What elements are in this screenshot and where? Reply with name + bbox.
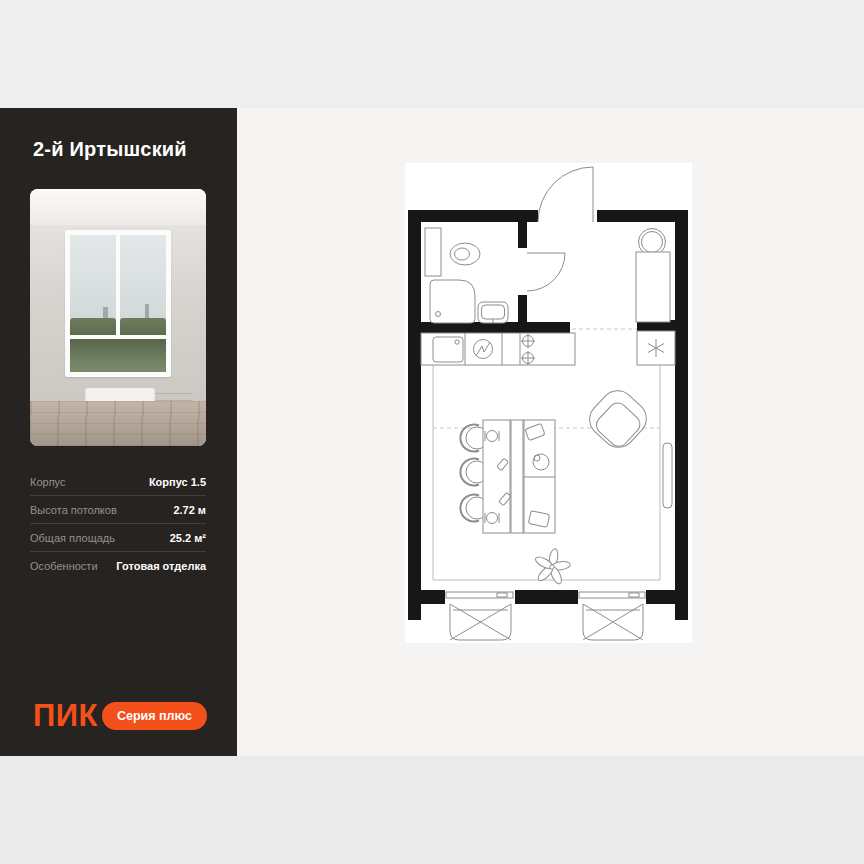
photo-window-lower-pane	[70, 339, 166, 372]
toilet-icon	[450, 243, 480, 265]
spec-label: Высота потолков	[30, 504, 117, 516]
entrance-door-icon	[538, 167, 593, 222]
floorplan-svg	[405, 163, 692, 643]
spec-label: Общая площадь	[30, 532, 115, 544]
bathroom-sink-icon	[478, 302, 508, 323]
photo-window-pane-right	[120, 235, 166, 335]
balcony-left	[446, 592, 513, 640]
listing-sidebar: 2-й Иртышский Корпус Корпус 1.5	[0, 108, 237, 756]
spec-value: 2.72 м	[173, 504, 206, 516]
dining-table-icon	[483, 420, 511, 533]
series-plus-button[interactable]: Серия плюс	[102, 702, 207, 730]
sidebar-footer: ПИК Серия плюс	[33, 700, 207, 731]
photo-treeline	[70, 318, 116, 335]
balcony-right	[579, 592, 645, 640]
spec-label: Особенности	[30, 560, 98, 572]
bottom-margin-strip	[0, 756, 864, 864]
photo-window-pane-left	[70, 235, 116, 335]
page: { "page": { "bg_top": "#efeeef", "bg_mai…	[0, 0, 864, 864]
pik-logo: ПИК	[33, 700, 98, 731]
bathroom-fixtures	[425, 228, 508, 323]
kitchen-counter	[421, 333, 575, 365]
bathroom-door-icon	[527, 253, 565, 291]
vent-shaft-icon	[425, 228, 441, 276]
armchair-icon	[583, 384, 654, 455]
photo-treeline	[120, 318, 166, 335]
photo-window	[65, 230, 171, 376]
fridge-icon	[637, 331, 675, 365]
top-margin-strip	[0, 0, 864, 108]
spec-label: Корпус	[30, 476, 65, 488]
spec-row-total-area: Общая площадь 25.2 м²	[30, 524, 206, 552]
apartment-photo	[30, 189, 206, 446]
photo-wood-floor	[30, 401, 206, 446]
spec-value: Готовая отделка	[116, 560, 206, 572]
kitchen-units	[421, 331, 675, 365]
shower-icon	[430, 280, 475, 323]
spec-row-korpus: Корпус Корпус 1.5	[30, 468, 206, 496]
photo-pipe	[155, 393, 192, 394]
spec-row-ceiling-height: Высота потолков 2.72 м	[30, 496, 206, 524]
spec-value: Корпус 1.5	[149, 476, 206, 488]
photo-ceiling	[30, 189, 206, 225]
spec-value: 25.2 м²	[170, 532, 206, 544]
floorplan-card	[405, 163, 692, 643]
project-title: 2-й Иртышский	[33, 138, 217, 161]
photo-window-panes	[70, 235, 166, 335]
spec-list: Корпус Корпус 1.5 Высота потолков 2.72 м…	[30, 468, 206, 579]
bed-icon	[511, 420, 555, 533]
washing-machine-icon	[639, 229, 666, 256]
side-window-icon	[663, 443, 672, 508]
spec-row-features: Особенности Готовая отделка	[30, 552, 206, 579]
wardrobe-icon	[636, 252, 670, 322]
hall-fixtures	[636, 229, 670, 323]
